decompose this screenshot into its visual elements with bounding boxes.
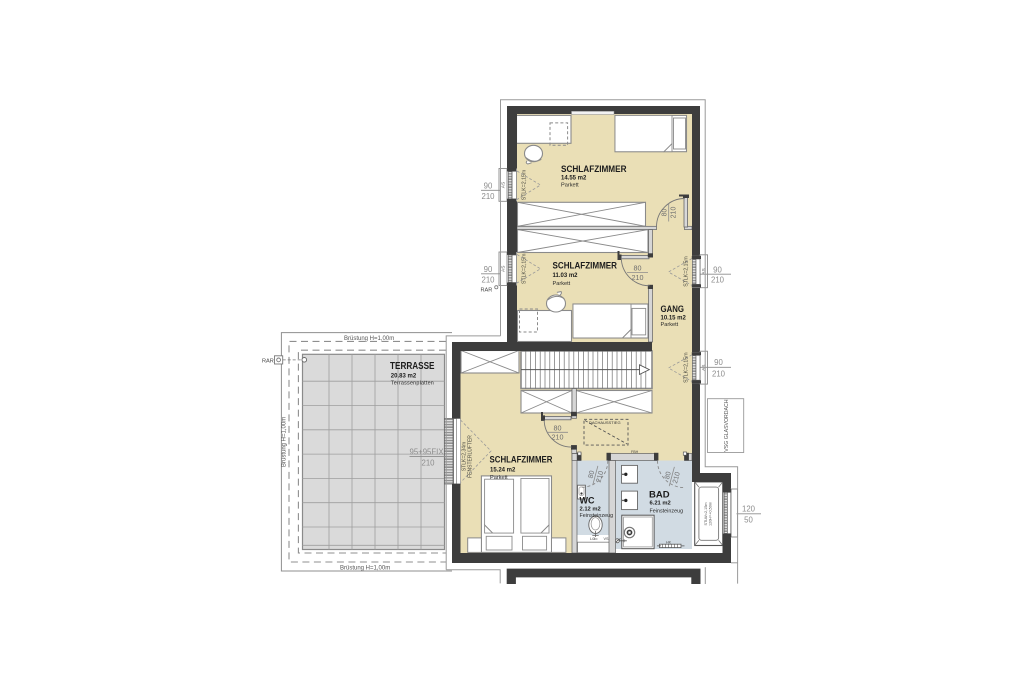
svg-text:210: 210 — [671, 207, 678, 219]
svg-text:VSG GLASVORDACH: VSG GLASVORDACH — [724, 399, 730, 451]
svg-text:AS: AS — [500, 266, 506, 272]
svg-text:SCHLAFZIMMER: SCHLAFZIMMER — [561, 164, 627, 174]
svg-text:Feinsteinzeug: Feinsteinzeug — [650, 508, 684, 514]
svg-text:90: 90 — [713, 265, 722, 274]
svg-text:LO: LO — [590, 537, 595, 541]
svg-text:210: 210 — [421, 458, 435, 467]
svg-text:2.12 m2: 2.12 m2 — [580, 506, 601, 512]
svg-text:90: 90 — [484, 265, 493, 274]
svg-text:HK: HK — [666, 540, 672, 544]
svg-text:Feinsteinzeug: Feinsteinzeug — [580, 513, 614, 519]
svg-text:STLW=2,15m: STLW=2,15m — [704, 502, 708, 525]
svg-text:Parkett: Parkett — [553, 281, 571, 287]
svg-text:210: 210 — [712, 370, 726, 379]
svg-text:10.15 m2: 10.15 m2 — [661, 315, 687, 321]
svg-text:Brüstung H=1,00m: Brüstung H=1,00m — [344, 336, 394, 342]
svg-text:120H=+0,50m: 120H=+0,50m — [709, 502, 713, 526]
svg-text:Brüstung H=1,00m: Brüstung H=1,00m — [340, 565, 390, 571]
svg-text:90: 90 — [714, 358, 723, 367]
svg-text:Terrassenplatten: Terrassenplatten — [391, 381, 434, 387]
svg-text:50: 50 — [744, 515, 753, 524]
svg-text:90: 90 — [484, 181, 493, 190]
svg-text:FENSTERLÜFTER: FENSTERLÜFTER — [467, 435, 474, 478]
svg-text:AS: AS — [500, 182, 506, 188]
svg-text:TERRASSE: TERRASSE — [390, 361, 435, 372]
svg-text:BAD: BAD — [649, 489, 670, 500]
svg-text:SCHLAFZIMMER: SCHLAFZIMMER — [553, 260, 618, 270]
svg-text:SCHLAFZIMMER: SCHLAFZIMMER — [490, 455, 553, 466]
svg-text:15.24 m2: 15.24 m2 — [490, 467, 516, 473]
svg-text:STLK=2,15m: STLK=2,15m — [683, 352, 689, 382]
svg-text:Parkett: Parkett — [661, 322, 679, 328]
svg-text:95+95FIX: 95+95FIX — [410, 447, 445, 456]
svg-text:RAR: RAR — [262, 359, 274, 365]
svg-text:AS: AS — [701, 268, 707, 274]
svg-text:VS: VS — [604, 537, 610, 541]
svg-text:14.55 m2: 14.55 m2 — [561, 176, 587, 182]
svg-text:80: 80 — [634, 264, 642, 273]
svg-text:Parkett: Parkett — [490, 475, 508, 481]
svg-text:Parkett: Parkett — [561, 182, 579, 188]
svg-text:DACHAUSSTIEG: DACHAUSSTIEG — [589, 420, 621, 425]
svg-text:210: 210 — [552, 433, 564, 442]
svg-text:RAR: RAR — [481, 287, 493, 293]
svg-text:STLK=2,15m: STLK=2,15m — [522, 170, 528, 200]
svg-text:210: 210 — [481, 192, 495, 201]
svg-text:STLK=2,15m: STLK=2,15m — [683, 256, 689, 286]
svg-text:WC: WC — [580, 496, 595, 506]
svg-text:STLK=2,15m: STLK=2,15m — [522, 254, 528, 284]
svg-text:80: 80 — [554, 424, 562, 433]
svg-text:11.03 m2: 11.03 m2 — [553, 273, 579, 279]
svg-text:80: 80 — [662, 209, 669, 217]
svg-text:6.21 m2: 6.21 m2 — [650, 500, 671, 506]
svg-text:120: 120 — [742, 505, 756, 514]
svg-text:GANG: GANG — [661, 304, 685, 314]
svg-text:Brüstung H=1,00m: Brüstung H=1,00m — [282, 417, 288, 467]
svg-text:210: 210 — [632, 273, 644, 282]
svg-text:210: 210 — [711, 276, 725, 285]
svg-text:20.83 m2: 20.83 m2 — [391, 374, 417, 380]
svg-text:210: 210 — [481, 275, 495, 284]
